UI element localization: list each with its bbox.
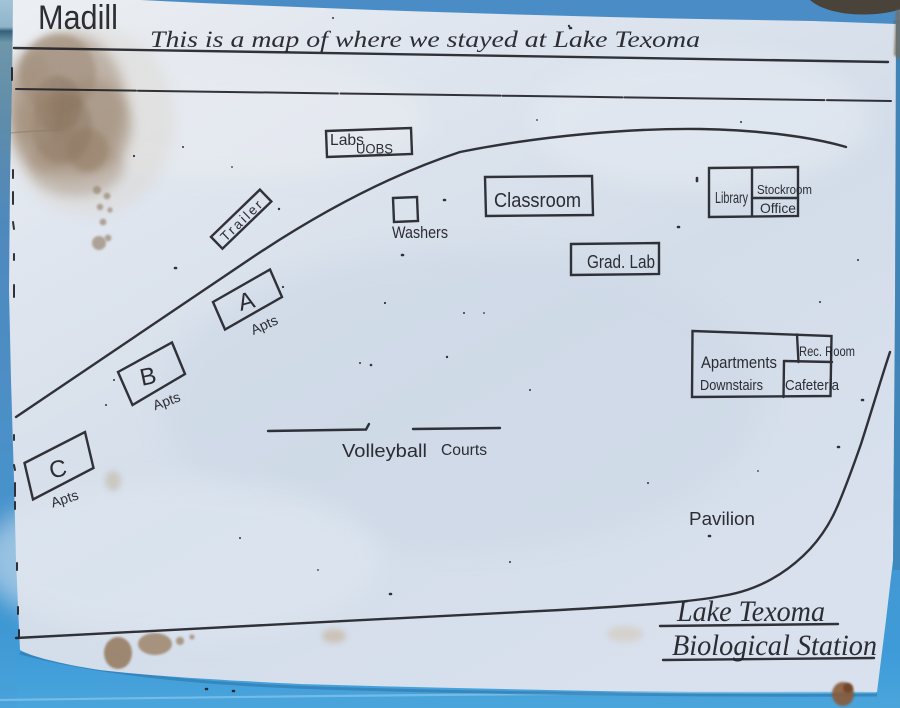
- svg-text:Lake Texoma: Lake Texoma: [676, 595, 825, 628]
- svg-text:Grad. Lab: Grad. Lab: [587, 252, 655, 272]
- svg-text:Courts: Courts: [441, 442, 487, 459]
- svg-text:Pavilion: Pavilion: [689, 509, 755, 529]
- svg-text:Rec. Room: Rec. Room: [799, 344, 855, 359]
- svg-text:Apartments: Apartments: [701, 353, 777, 372]
- svg-text:Biological Station: Biological Station: [672, 629, 877, 662]
- svg-text:Downstairs: Downstairs: [700, 378, 763, 394]
- svg-text:Madill: Madill: [38, 0, 118, 37]
- svg-text:Volleyball: Volleyball: [342, 441, 427, 461]
- svg-text:Classroom: Classroom: [494, 190, 581, 212]
- svg-text:Stockroom: Stockroom: [757, 182, 812, 197]
- svg-text:Cafeteria: Cafeteria: [785, 378, 840, 394]
- svg-text:Library: Library: [715, 190, 748, 207]
- svg-text:This is a map of where we stay: This is a map of where we stayed at Lake…: [150, 27, 700, 52]
- svg-text:UOBS: UOBS: [356, 142, 393, 157]
- svg-text:Washers: Washers: [392, 224, 448, 242]
- svg-text:Office: Office: [760, 200, 796, 216]
